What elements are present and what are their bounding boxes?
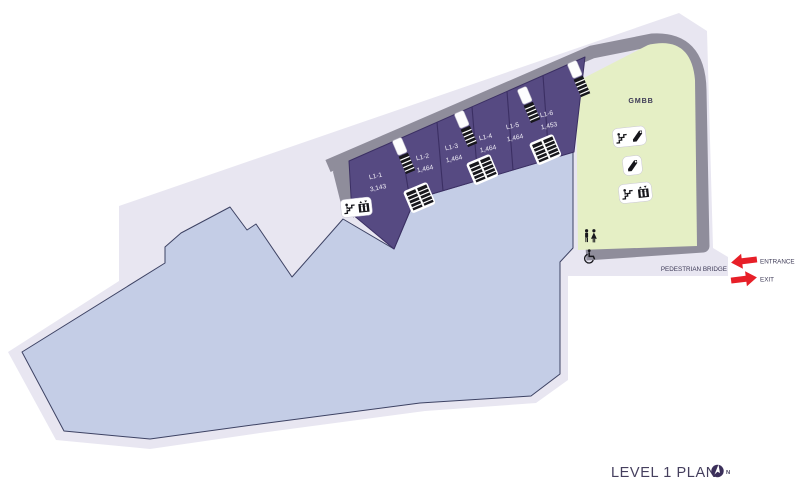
floor-plan-canvas: L1-1 3,143 L1-2 1,464 L1-3 1,464 L1-4 1,… xyxy=(0,0,800,498)
entrance-arrow-icon xyxy=(730,252,758,270)
gmbb-label: GMBB xyxy=(628,96,653,105)
title-block: LEVEL 1 PLAN N xyxy=(611,465,730,482)
pedestrian-bridge-label: PEDESTRIAN BRIDGE xyxy=(661,266,727,273)
stairs-lift-chip xyxy=(340,197,373,218)
exit-arrow-icon xyxy=(730,270,758,288)
plan-title: LEVEL 1 PLAN xyxy=(611,465,717,481)
entrance-marker: ENTRANCE xyxy=(730,252,794,270)
exit-marker: EXIT xyxy=(730,270,774,288)
gmbb-area xyxy=(576,43,697,250)
stairs-escalator-chip xyxy=(612,126,647,148)
level-1-floor-plan: L1-1 3,143 L1-2 1,464 L1-3 1,464 L1-4 1,… xyxy=(0,0,800,498)
north-label: N xyxy=(726,470,730,476)
stairs-lift-chip xyxy=(618,182,653,204)
escalator-chip xyxy=(622,155,643,176)
entrance-label: ENTRANCE xyxy=(760,259,795,266)
exit-label: EXIT xyxy=(760,277,774,284)
